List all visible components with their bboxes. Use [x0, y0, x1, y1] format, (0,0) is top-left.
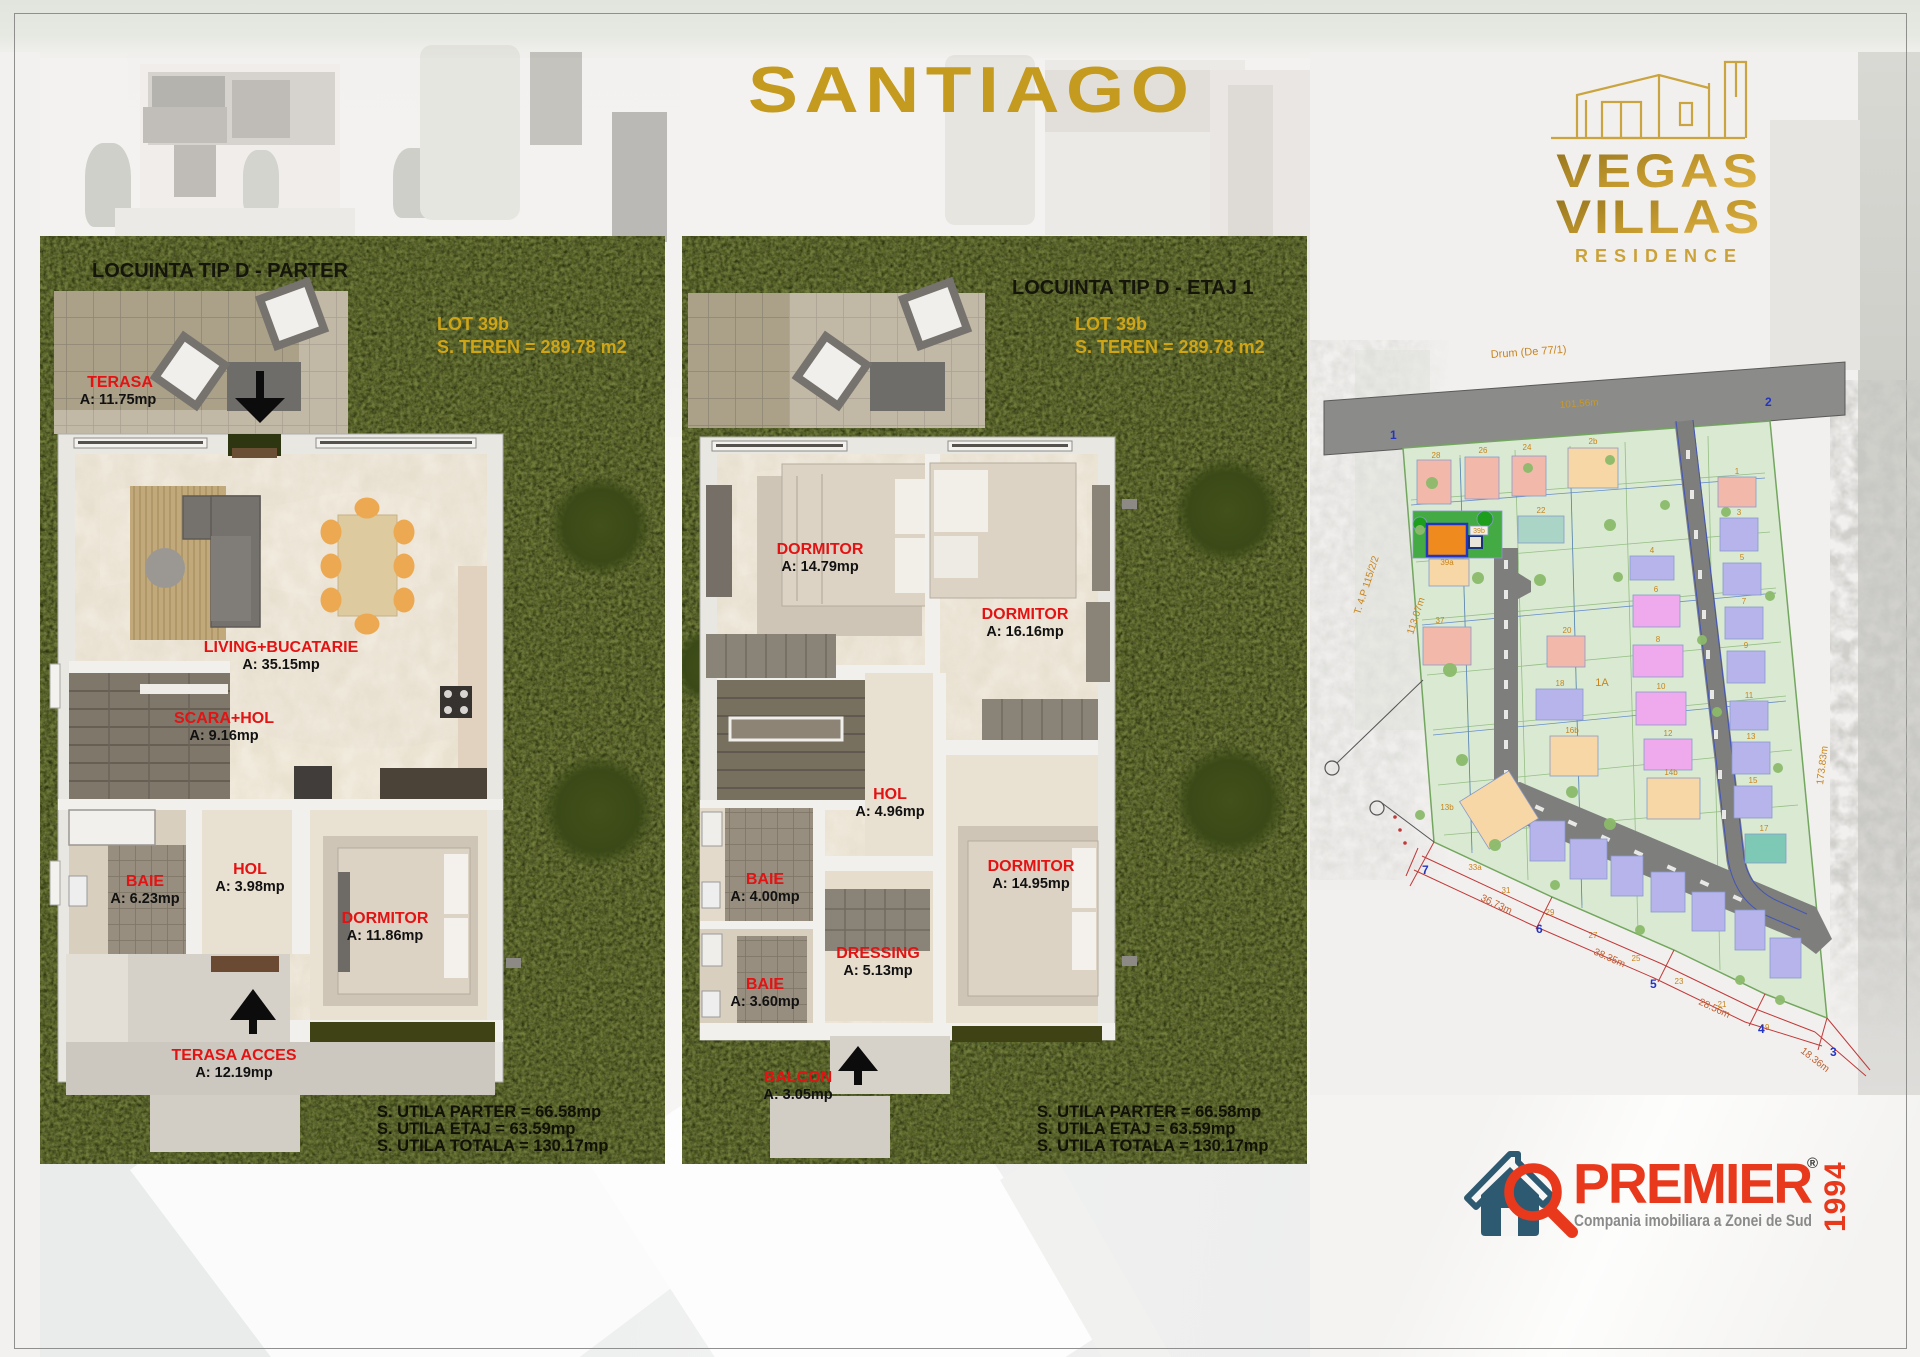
svg-text:HOL: HOL — [233, 861, 267, 878]
svg-text:18: 18 — [1556, 679, 1565, 688]
svg-text:A: 3.60mp: A: 3.60mp — [730, 994, 799, 1010]
svg-text:15: 15 — [1749, 776, 1758, 785]
svg-text:1: 1 — [1390, 428, 1397, 442]
svg-text:9: 9 — [1744, 641, 1749, 650]
svg-text:38.35m: 38.35m — [1592, 947, 1627, 971]
svg-text:5: 5 — [1740, 553, 1745, 562]
svg-text:4: 4 — [1758, 1022, 1765, 1036]
svg-text:23: 23 — [1675, 977, 1684, 986]
svg-text:A: 3.05mp: A: 3.05mp — [763, 1087, 832, 1103]
svg-text:37: 37 — [1436, 616, 1445, 625]
svg-text:22: 22 — [1537, 506, 1546, 515]
svg-text:12: 12 — [1664, 729, 1673, 738]
svg-text:2b: 2b — [1589, 437, 1598, 446]
svg-text:HOL: HOL — [873, 786, 907, 803]
svg-text:13: 13 — [1747, 732, 1756, 741]
svg-text:Drum (De 77/1): Drum (De 77/1) — [1490, 344, 1566, 361]
svg-text:DORMITOR: DORMITOR — [777, 541, 864, 558]
svg-text:5: 5 — [1650, 977, 1657, 991]
svg-text:1: 1 — [1735, 467, 1740, 476]
svg-text:1A: 1A — [1595, 677, 1609, 689]
svg-text:S. UTILA ETAJ = 63.59mp: S. UTILA ETAJ = 63.59mp — [1037, 1120, 1236, 1138]
svg-text:20: 20 — [1563, 626, 1572, 635]
svg-text:BAIE: BAIE — [126, 873, 165, 890]
svg-text:24: 24 — [1523, 443, 1532, 452]
svg-text:6: 6 — [1536, 922, 1543, 936]
svg-text:BAIE: BAIE — [746, 871, 785, 888]
svg-text:DRESSING: DRESSING — [836, 945, 920, 962]
svg-text:Compania imobiliara a Zonei de: Compania imobiliara a Zonei de Sud — [1574, 1212, 1812, 1230]
svg-text:A: 11.86mp: A: 11.86mp — [347, 928, 424, 944]
svg-text:LOT 39b: LOT 39b — [1075, 314, 1147, 334]
svg-text:LIVING+BUCATARIE: LIVING+BUCATARIE — [204, 639, 359, 656]
svg-text:S. UTILA PARTER = 66.58mp: S. UTILA PARTER = 66.58mp — [377, 1103, 601, 1121]
svg-text:DORMITOR: DORMITOR — [982, 606, 1069, 623]
svg-text:A: 12.19mp: A: 12.19mp — [195, 1065, 273, 1081]
svg-text:10: 10 — [1657, 682, 1666, 691]
svg-text:A: 35.15mp: A: 35.15mp — [242, 657, 320, 673]
svg-text:6: 6 — [1654, 585, 1659, 594]
svg-text:14b: 14b — [1664, 768, 1678, 777]
svg-text:A: 14.95mp: A: 14.95mp — [992, 876, 1070, 892]
svg-text:13b: 13b — [1440, 803, 1454, 812]
svg-text:LOT 39b: LOT 39b — [437, 314, 509, 334]
svg-text:S. UTILA ETAJ = 63.59mp: S. UTILA ETAJ = 63.59mp — [377, 1120, 576, 1138]
svg-text:SCARA+HOL: SCARA+HOL — [174, 710, 274, 727]
svg-text:BALCON: BALCON — [764, 1069, 832, 1086]
svg-text:33a: 33a — [1468, 863, 1482, 872]
svg-text:DORMITOR: DORMITOR — [342, 910, 429, 927]
svg-text:16b: 16b — [1565, 726, 1579, 735]
svg-text:TERASA: TERASA — [87, 374, 153, 391]
svg-text:S. UTILA TOTALA = 130.17mp: S. UTILA TOTALA = 130.17mp — [377, 1137, 609, 1155]
svg-text:8: 8 — [1656, 635, 1661, 644]
svg-text:11: 11 — [1745, 691, 1754, 700]
svg-text:39a: 39a — [1440, 558, 1454, 567]
svg-text:28: 28 — [1432, 451, 1441, 460]
svg-text:S. UTILA PARTER = 66.58mp: S. UTILA PARTER = 66.58mp — [1037, 1103, 1261, 1121]
svg-text:TERASA ACCES: TERASA ACCES — [171, 1047, 296, 1064]
svg-text:2: 2 — [1765, 395, 1772, 409]
svg-text:BAIE: BAIE — [746, 976, 785, 993]
svg-text:A: 11.75mp: A: 11.75mp — [80, 392, 157, 408]
svg-text:A: 14.79mp: A: 14.79mp — [781, 559, 859, 575]
svg-text:A: 4.96mp: A: 4.96mp — [855, 804, 924, 820]
svg-text:S. UTILA TOTALA = 130.17mp: S. UTILA TOTALA = 130.17mp — [1037, 1137, 1269, 1155]
svg-text:3: 3 — [1737, 508, 1742, 517]
svg-text:®: ® — [1807, 1155, 1818, 1172]
svg-text:S. TEREN = 289.78 m2: S. TEREN = 289.78 m2 — [1075, 337, 1265, 357]
svg-text:S. TEREN = 289.78 m2: S. TEREN = 289.78 m2 — [437, 337, 627, 357]
svg-text:17: 17 — [1760, 824, 1769, 833]
svg-text:A: 16.16mp: A: 16.16mp — [986, 624, 1064, 640]
svg-text:A: 4.00mp: A: 4.00mp — [730, 889, 799, 905]
svg-text:18.36m: 18.36m — [1798, 1046, 1831, 1075]
svg-text:LOCUINTA TIP D - ETAJ 1: LOCUINTA TIP D - ETAJ 1 — [1012, 277, 1254, 299]
svg-text:DORMITOR: DORMITOR — [988, 858, 1075, 875]
svg-text:A: 5.13mp: A: 5.13mp — [843, 963, 912, 979]
svg-text:26: 26 — [1479, 446, 1488, 455]
svg-text:VILLAS: VILLAS — [1556, 189, 1762, 243]
svg-text:3: 3 — [1830, 1045, 1837, 1059]
svg-text:7: 7 — [1742, 597, 1747, 606]
svg-text:7: 7 — [1422, 863, 1429, 877]
svg-text:A: 6.23mp: A: 6.23mp — [110, 891, 179, 907]
svg-text:173.83m: 173.83m — [1815, 745, 1831, 785]
svg-text:A: 3.98mp: A: 3.98mp — [215, 879, 284, 895]
svg-text:39b: 39b — [1473, 528, 1485, 535]
svg-text:25: 25 — [1632, 954, 1641, 963]
svg-text:PREMIER: PREMIER — [1573, 1151, 1813, 1215]
svg-text:4: 4 — [1650, 546, 1655, 555]
svg-text:A: 9.16mp: A: 9.16mp — [189, 728, 258, 744]
svg-text:1994: 1994 — [1819, 1161, 1852, 1232]
svg-text:RESIDENCE: RESIDENCE — [1575, 246, 1743, 266]
